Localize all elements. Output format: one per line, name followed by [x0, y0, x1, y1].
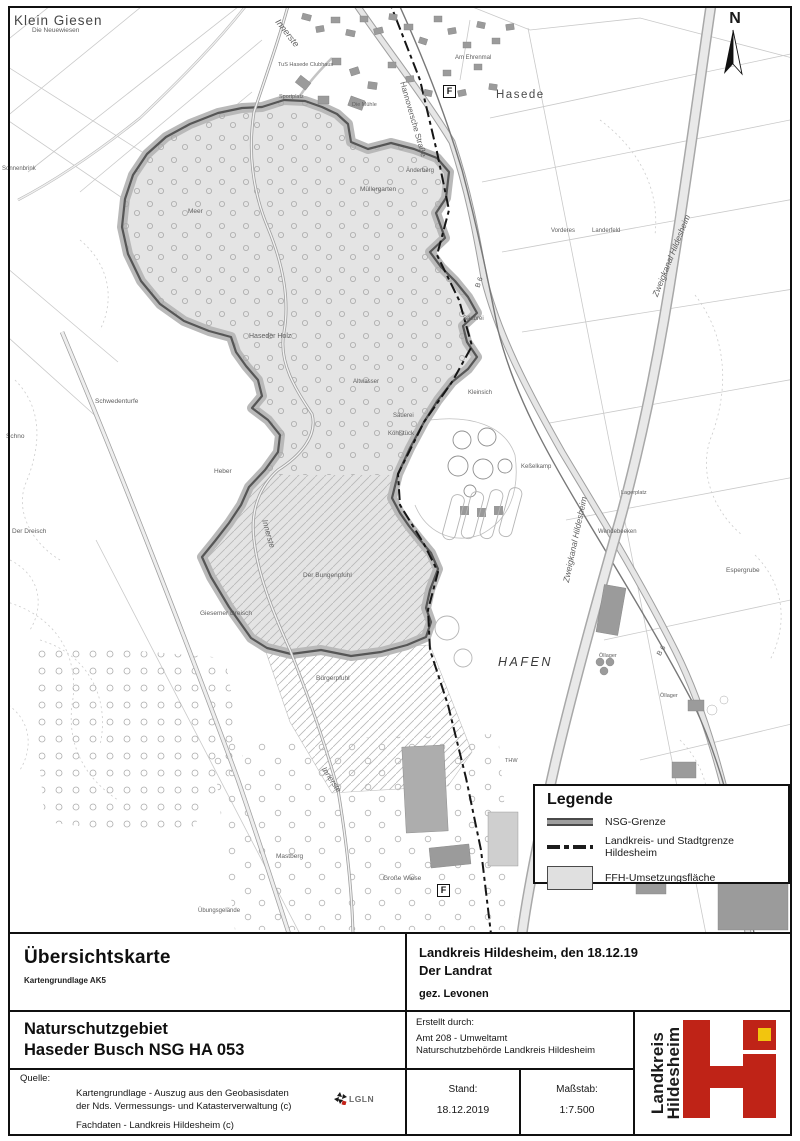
stadtgrenze-swatch: [547, 845, 593, 850]
map-label: Übungsgelände: [198, 908, 240, 914]
legend-item-stadtgrenze: Landkreis- und Stadtgrenze Hildesheim: [547, 835, 788, 859]
legend-title: Legende: [547, 791, 788, 809]
map-label: Landerfeld: [592, 228, 620, 234]
lgln-logo-icon: [334, 1092, 347, 1105]
map-label: Säubrei: [463, 316, 484, 322]
map-label: Altwasser: [353, 379, 379, 385]
issuer-line2: Der Landrat: [419, 962, 790, 980]
map-label: Schwedenturfe: [95, 399, 138, 406]
map-label: TuS Hasede Clubhaus: [278, 63, 333, 69]
map-label: Die Neuewiesen: [32, 28, 79, 35]
created-by-cell: Erstellt durch: Amt 208 - Umweltamt Natu…: [407, 1012, 635, 1070]
nsg-grenze-swatch: [547, 818, 593, 826]
logo-line2: Hildesheim: [666, 1014, 682, 1132]
map-label: Haseder Holz: [249, 333, 291, 340]
map-label: Wendebeeken: [598, 529, 637, 535]
map-label: Köhlstück: [388, 431, 414, 437]
map-label: Säuerei: [393, 413, 414, 419]
map-label: HAFEN: [498, 656, 553, 669]
issuer-cell: Landkreis Hildesheim, den 18.12.19 Der L…: [407, 934, 790, 1012]
map-label: Keßelkamp: [521, 464, 551, 470]
north-label: N: [724, 10, 746, 28]
source-line3: Fachdaten - Landkreis Hildesheim (c): [76, 1120, 405, 1133]
title-panel: Übersichtskarte Kartengrundlage AK5 Land…: [8, 932, 792, 1136]
nsg-title-cell: Naturschutzgebiet Haseder Busch NSG HA 0…: [10, 1012, 407, 1070]
stand-cell: Stand: 18.12.2019: [407, 1070, 521, 1134]
map-base-note: Kartengrundlage AK5: [24, 976, 405, 985]
stand-label: Stand:: [407, 1084, 519, 1095]
logo-cell: Landkreis Hildesheim: [635, 1012, 790, 1134]
map-label: Der Bungenpfuhl: [303, 573, 352, 580]
massstab-label: Maßstab:: [521, 1084, 633, 1095]
map-label: Espergrube: [726, 568, 760, 575]
stand-value: 18.12.2019: [407, 1104, 519, 1116]
map-label: Öllager: [660, 694, 678, 700]
map-label: THW: [505, 759, 518, 765]
created-by-label: Erstellt durch:: [416, 1017, 633, 1028]
nsg-title-line2: Haseder Busch NSG HA 053: [24, 1040, 405, 1061]
map-label: Sportplatz: [279, 95, 304, 101]
map-label: Die Mühle: [352, 103, 377, 109]
legend-item-ffh: FFH-Umsetzungsfläche: [547, 866, 788, 890]
created-by-line1: Amt 208 - Umweltamt: [416, 1033, 633, 1044]
legend-item-nsg-grenze: NSG-Grenze: [547, 816, 788, 828]
north-arrow-icon: [720, 28, 746, 78]
map-label: Müllergarten: [360, 187, 396, 194]
legend: Legende NSG-Grenze Landkreis- und Stadtg…: [533, 784, 790, 884]
map-label: Große Wiese: [383, 876, 421, 883]
ffh-swatch: [547, 866, 593, 890]
source-cell: Quelle: Kartengrundlage - Auszug aus den…: [10, 1070, 407, 1134]
north-arrow: N: [720, 10, 746, 83]
f-marker: F: [443, 85, 456, 98]
created-by-line2: Naturschutzbehörde Landkreis Hildesheim: [416, 1045, 633, 1056]
massstab-value: 1:7.500: [521, 1104, 633, 1116]
logo-yellow-square: [758, 1028, 771, 1041]
massstab-cell: Maßstab: 1:7.500: [521, 1070, 635, 1134]
map-label: Bürgerpfuhl: [316, 676, 350, 683]
map-label: Vorderes: [551, 228, 575, 234]
lgln-label: LGLN: [349, 1094, 374, 1104]
map-label: Kleinsich: [468, 390, 492, 396]
map-label: Schno: [6, 434, 24, 441]
map-label: Mastberg: [276, 854, 303, 861]
signature: gez. Levonen: [419, 988, 790, 1000]
source-label: Quelle:: [20, 1073, 405, 1084]
map-label: Giesemer Dreisch: [200, 611, 252, 618]
logo-wordmark: Landkreis Hildesheim: [650, 1014, 686, 1132]
nsg-title-line1: Naturschutzgebiet: [24, 1019, 405, 1040]
map-label: Klein Giesen: [14, 14, 103, 28]
map-label: Der Dreisch: [12, 529, 46, 536]
map-type-cell: Übersichtskarte Kartengrundlage AK5: [10, 934, 407, 1012]
map-type-title: Übersichtskarte: [24, 947, 405, 969]
map-label: Sonnenbrink: [2, 166, 36, 172]
issuer-line1: Landkreis Hildesheim, den 18.12.19: [419, 944, 790, 962]
map-label: Am Ehrenmal: [455, 55, 491, 61]
map-label: Hasede: [496, 90, 545, 102]
lgln-logo: LGLN: [334, 1092, 374, 1105]
map-label: Heber: [214, 469, 232, 476]
map-label: Öllager: [599, 654, 617, 660]
map-label: Änderberg: [406, 168, 434, 174]
f-marker: F: [437, 884, 450, 897]
map-label: Lagerplatz: [621, 491, 647, 497]
map-label: Meer: [188, 209, 203, 216]
